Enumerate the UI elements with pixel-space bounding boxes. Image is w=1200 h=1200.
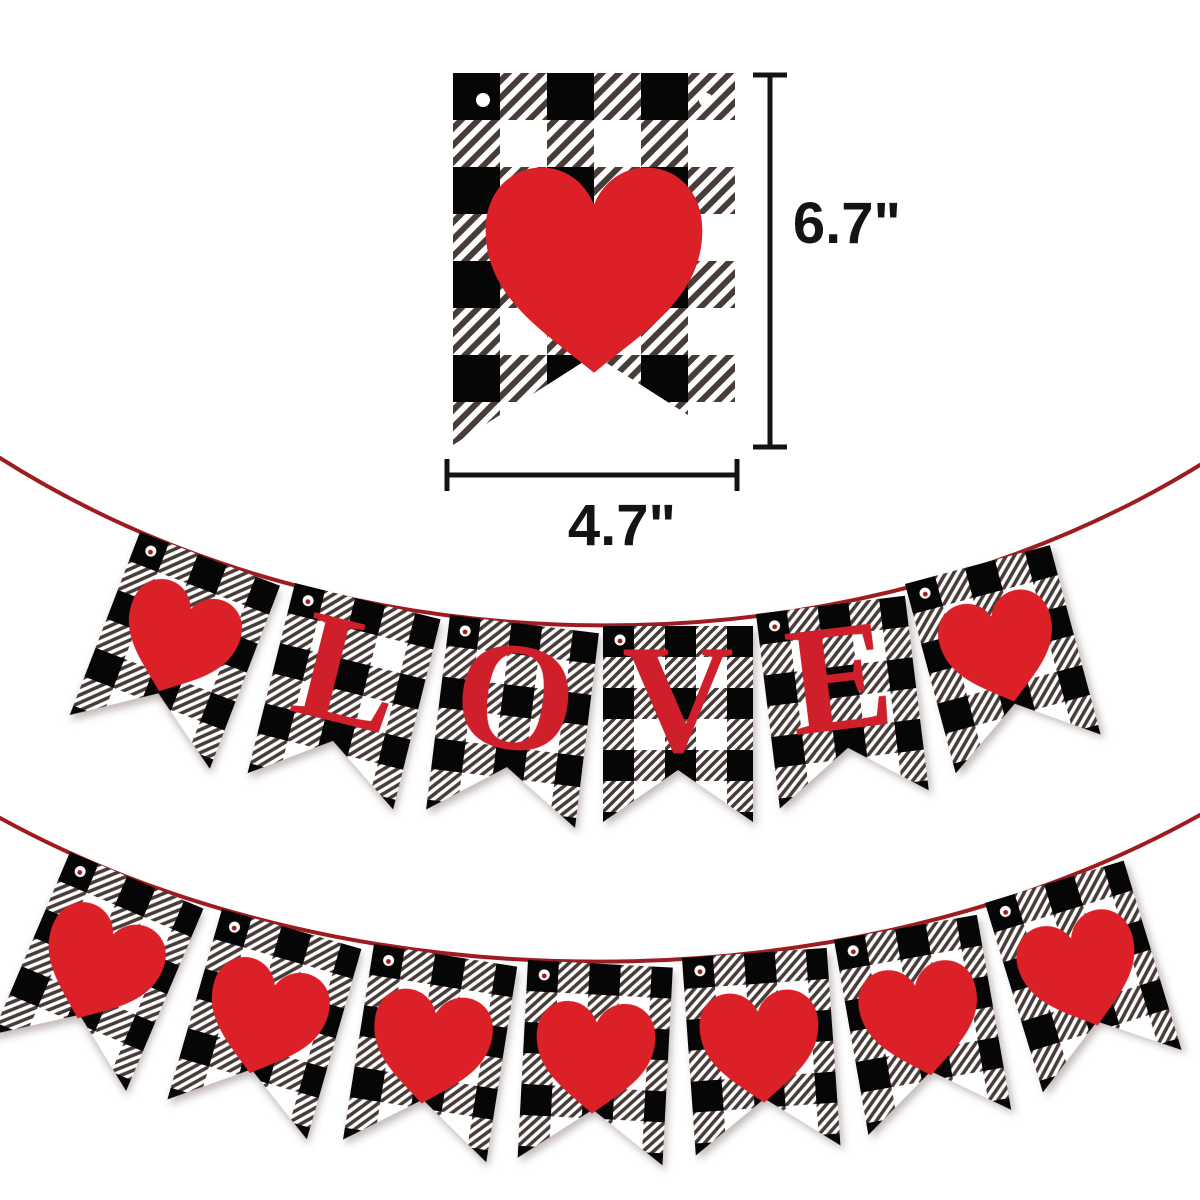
pennant-letter-o: O bbox=[426, 602, 600, 828]
width-label: 4.7" bbox=[568, 493, 676, 558]
pennant-heart bbox=[167, 909, 361, 1139]
height-label: 6.7" bbox=[793, 191, 901, 256]
hearts-banner bbox=[0, 815, 1200, 1165]
pennant-heart bbox=[682, 948, 840, 1156]
string-hole bbox=[699, 93, 713, 107]
pennant-letter-v: V bbox=[603, 613, 753, 822]
width-dimension: 4.7" bbox=[447, 459, 737, 558]
pennant-letter-l: L bbox=[248, 570, 444, 809]
pennant-heart bbox=[343, 944, 517, 1162]
reference-pennant bbox=[453, 73, 735, 445]
pennant-heart bbox=[0, 852, 203, 1091]
banner-letter: E bbox=[778, 586, 902, 769]
pennant-heart bbox=[905, 545, 1101, 773]
pennant-heart bbox=[70, 532, 280, 769]
pennant-heart bbox=[834, 915, 1011, 1135]
height-dimension: 6.7" bbox=[753, 75, 901, 447]
pennant-heart bbox=[518, 960, 673, 1165]
banner-letter: O bbox=[445, 604, 586, 789]
pennant-letter-e: E bbox=[754, 583, 928, 809]
string-hole bbox=[476, 93, 490, 107]
banner-letter: V bbox=[622, 613, 734, 785]
pennant-heart bbox=[985, 861, 1182, 1093]
product-image: 6.7" 4.7" L O bbox=[0, 0, 1200, 1200]
